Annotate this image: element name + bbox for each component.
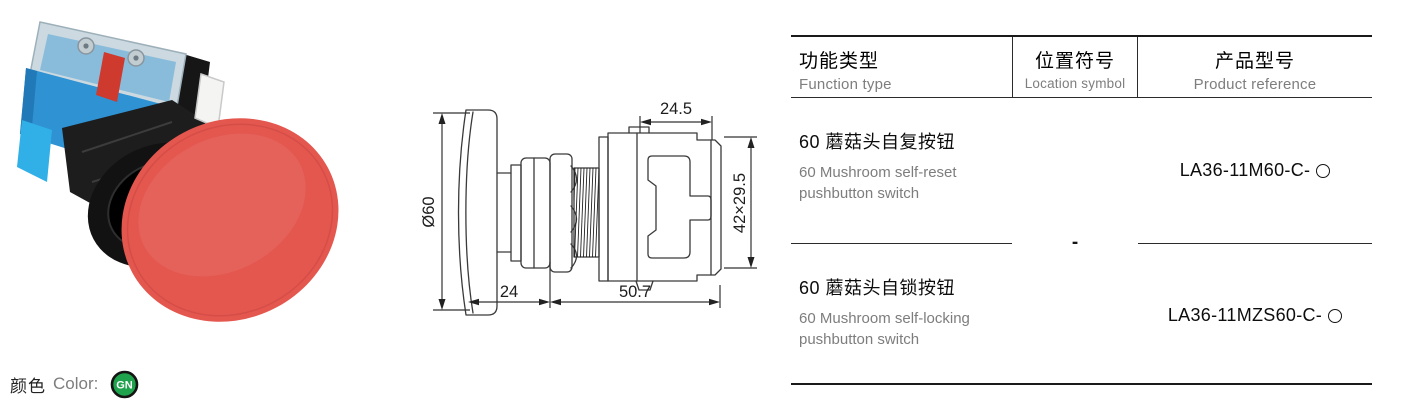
header-product-reference-en: Product reference	[1138, 76, 1372, 93]
color-code-placeholder-icon	[1328, 309, 1342, 323]
function-en2-row1: pushbutton switch	[799, 183, 1006, 204]
dim-label-block-hw: 42×29.5	[731, 173, 749, 233]
product-reference-cell-row2: LA36-11MZS60-C-	[1138, 244, 1372, 387]
location-symbol-value: -	[1072, 232, 1078, 254]
dim-label-diameter: Ø60	[420, 196, 438, 227]
header-function-type-en: Function type	[799, 76, 1012, 93]
dimension-drawing: Ø60 24.5 42×29.5 24 50.7	[398, 76, 786, 324]
function-cell-row2: 60 蘑菇头自锁按钮 60 Mushroom self-locking push…	[791, 244, 1012, 387]
color-label-zh: 颜色	[10, 372, 46, 397]
dim-label-cap-depth: 24	[500, 283, 518, 301]
catalog-page: Ø60 24.5 42×29.5 24 50.7 功能类型 Function t…	[0, 0, 1403, 419]
header-location-symbol-en: Location symbol	[1013, 76, 1137, 91]
header-location-symbol-zh: 位置符号	[1013, 46, 1137, 73]
dimension-lines	[433, 113, 757, 310]
color-label-en: Color:	[53, 374, 98, 394]
dim-label-block-width: 24.5	[660, 100, 692, 118]
function-en1-row2: 60 Mushroom self-locking	[799, 308, 1006, 329]
header-function-type: 功能类型 Function type	[791, 37, 1012, 98]
spec-table: 功能类型 Function type 位置符号 Location symbol …	[791, 35, 1372, 385]
drawing-stem	[497, 173, 511, 252]
color-code-placeholder-icon	[1316, 164, 1330, 178]
drawing-bezel	[511, 154, 577, 272]
drawing-thread	[574, 168, 599, 257]
header-product-reference: 产品型号 Product reference	[1138, 37, 1372, 98]
function-en1-row1: 60 Mushroom self-reset	[799, 162, 1006, 183]
drawing-contact-block	[599, 127, 721, 290]
color-legend: 颜色 Color: GN	[10, 368, 140, 400]
product-photo	[8, 5, 343, 350]
color-badge-text: GN	[117, 379, 134, 391]
drawing-cap-profile	[459, 110, 498, 315]
dim-label-body-length: 50.7	[619, 283, 651, 301]
function-en-row1: 60 Mushroom self-reset pushbutton switch	[799, 162, 1006, 204]
product-reference-cell-row1: LA36-11M60-C-	[1138, 98, 1372, 244]
product-reference-row1: LA36-11M60-C-	[1180, 160, 1311, 181]
dimension-arrows	[439, 113, 755, 310]
location-symbol-cell: -	[1012, 98, 1138, 387]
header-function-type-zh: 功能类型	[799, 46, 1012, 73]
header-product-reference-zh: 产品型号	[1138, 46, 1372, 73]
product-reference-row2: LA36-11MZS60-C-	[1168, 305, 1322, 326]
header-location-symbol: 位置符号 Location symbol	[1012, 37, 1138, 98]
connector-tab	[195, 74, 224, 128]
function-zh-row1: 60 蘑菇头自复按钮	[799, 128, 1006, 154]
function-en2-row2: pushbutton switch	[799, 329, 1006, 350]
function-cell-row1: 60 蘑菇头自复按钮 60 Mushroom self-reset pushbu…	[791, 98, 1012, 244]
function-en-row2: 60 Mushroom self-locking pushbutton swit…	[799, 308, 1006, 350]
function-zh-row2: 60 蘑菇头自锁按钮	[799, 274, 1006, 300]
color-badge-green: GN	[109, 369, 140, 400]
